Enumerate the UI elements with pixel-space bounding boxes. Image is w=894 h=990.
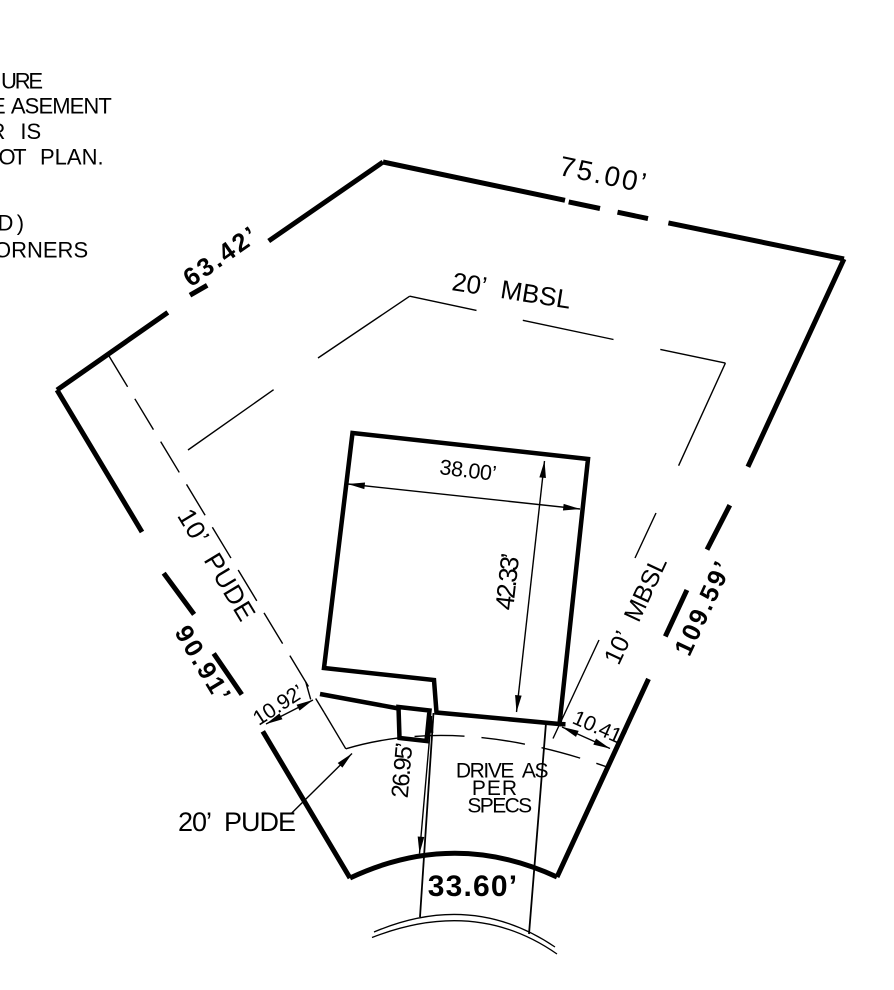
svg-text:10.92’: 10.92’ <box>249 681 308 730</box>
svg-text:75.00’: 75.00’ <box>557 150 652 199</box>
svg-text:10’ MBSL: 10’ MBSL <box>599 552 673 668</box>
svg-text:ORNERS: ORNERS <box>0 238 88 263</box>
svg-text:33.60’: 33.60’ <box>428 870 519 903</box>
svg-text:20’ PUDE: 20’ PUDE <box>178 807 295 837</box>
svg-text:20’ MBSL: 20’ MBSL <box>450 266 573 314</box>
svg-text:D: D <box>0 211 13 236</box>
svg-text:): ) <box>17 211 24 236</box>
svg-text:63.42’: 63.42’ <box>178 220 264 292</box>
svg-text:90.91’: 90.91’ <box>169 621 237 709</box>
svg-text:OT: OT <box>0 145 26 170</box>
svg-text:R: R <box>0 119 5 144</box>
svg-text:SPECS: SPECS <box>467 795 532 818</box>
svg-text:PLAN.: PLAN. <box>40 145 104 170</box>
svg-text:42.33’: 42.33’ <box>489 552 525 611</box>
svg-text:URE: URE <box>1 69 42 94</box>
svg-text:10’ PUDE: 10’ PUDE <box>171 503 262 626</box>
svg-text:38.00’: 38.00’ <box>438 455 497 486</box>
svg-text:E: E <box>0 94 6 119</box>
svg-text:26.95’: 26.95’ <box>387 743 419 799</box>
svg-text:IS: IS <box>20 119 41 144</box>
svg-text:ASEMENT: ASEMENT <box>11 94 112 119</box>
